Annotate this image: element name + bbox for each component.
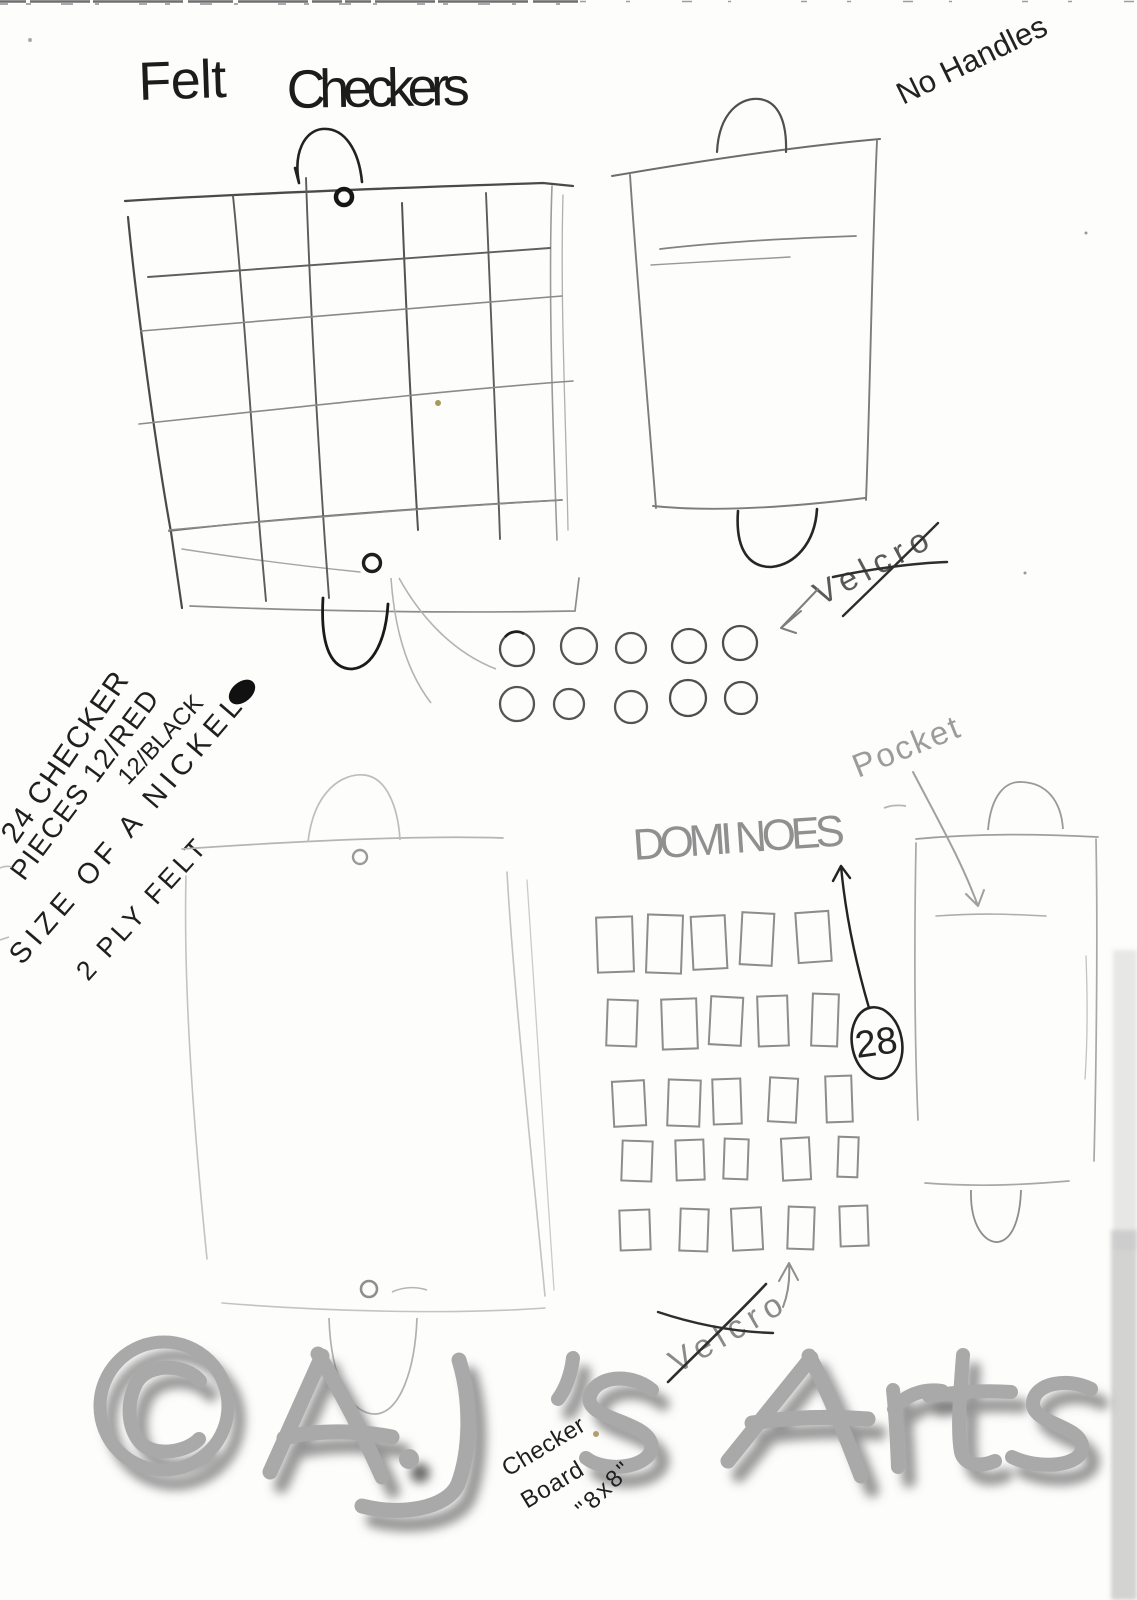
svg-text:28: 28 (852, 1019, 900, 1066)
svg-text:Felt: Felt (137, 49, 227, 112)
svg-text:Checkers: Checkers (286, 57, 470, 120)
